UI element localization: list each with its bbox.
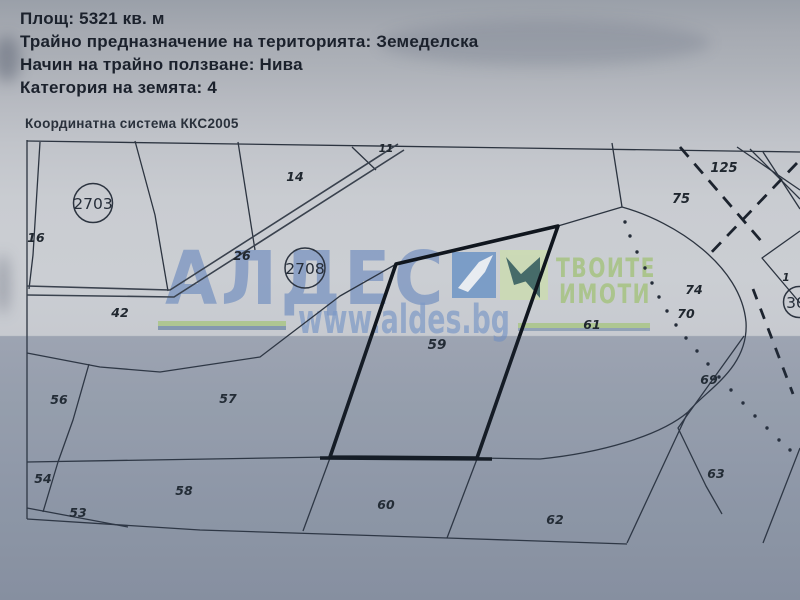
parcel-label-30: 30 [786,294,800,312]
cadastral-map: АЛДЕС ТВОИТЕ ИМОТИ www.aldes.bg [0,0,800,600]
parcel-label-2703: 2703 [73,195,112,213]
parcel-label-11: 11 [379,143,394,155]
parcel-label-70: 70 [677,306,695,321]
parcel-label-74: 74 [685,282,702,297]
circled-parcel-30-clipped: 30 [784,287,800,318]
parcel-label-16: 16 [27,230,45,245]
parcel-label-53: 53 [69,505,86,520]
parcel-label-61: 61 [583,317,600,332]
scanned-cadastral-sketch: Площ: 5321 кв. м Трайно предназначение н… [0,0,800,600]
parcel-label-54: 54 [34,471,51,486]
parcel-label-60: 60 [377,497,395,512]
parcel-label-125: 125 [710,161,737,176]
parcel-label-2708: 2708 [285,260,324,278]
circled-parcel-2703: 2703 [73,184,112,223]
parcel-label-63: 63 [707,466,724,481]
underline-bar-left-green [158,321,286,326]
parcel-label-59: 59 [428,337,447,353]
parcel-label-14: 14 [286,169,303,184]
parcel-label-57: 57 [219,391,237,406]
parcel-label-26: 26 [233,248,251,263]
parcel-label-75: 75 [672,192,690,207]
parcel-label-56: 56 [50,392,68,407]
parcel-label-42: 42 [110,305,128,320]
watermark-tagline-line2: ИМОТИ [559,279,651,310]
parcel-label-62: 62 [546,512,563,527]
parcel-label-69: 69 [700,372,718,387]
underline-bar-left-blue [158,326,286,330]
parcel-label-58: 58 [175,483,193,498]
parcel-label-edge-fragment: 1 [782,272,789,284]
